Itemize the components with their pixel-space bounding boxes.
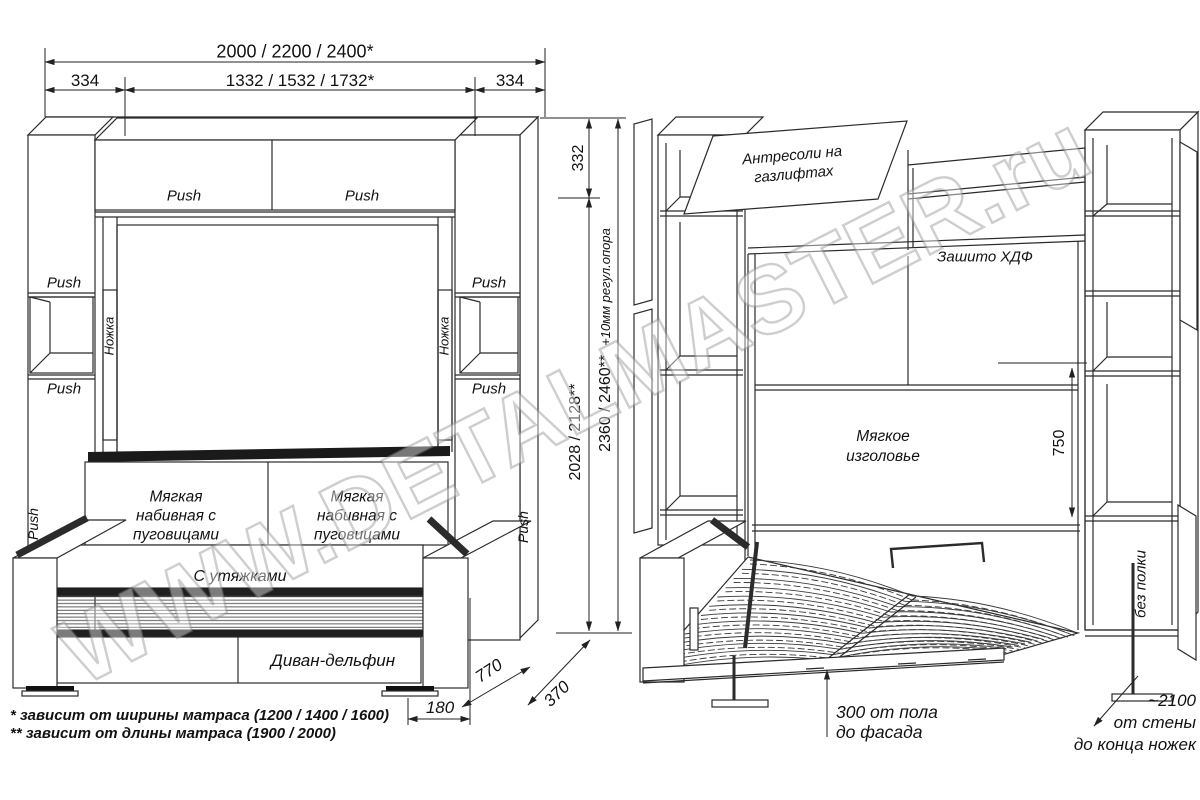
wall-note-line1: ~2100 xyxy=(1148,691,1196,710)
wall-note-line3: до конца ножек xyxy=(1074,735,1196,754)
dim-inner-height: 2028 / 2128** xyxy=(567,384,585,481)
dim-total-width: 2000 / 2200 / 2400* xyxy=(216,42,373,63)
push-left-lower: Push xyxy=(47,380,81,397)
cushion-label-right: Мягкая набивная с пуговицами xyxy=(305,488,409,545)
cushion-label-left: Мягкая набивная с пуговицами xyxy=(124,488,228,545)
push-right-vertical: Push xyxy=(515,511,531,543)
push-left-vertical: Push xyxy=(25,508,41,540)
floor-note-line2: до фасада xyxy=(836,722,923,742)
push-right-upper: Push xyxy=(472,274,506,291)
no-shelf-label: без полки xyxy=(1132,550,1149,618)
headboard-label: Мягкое изголовье xyxy=(828,427,938,467)
push-left-upper: Push xyxy=(47,274,81,291)
floor-note-line1: 300 от пола xyxy=(836,702,938,722)
dim-inner-width: 1332 / 1532 / 1732* xyxy=(226,71,374,91)
floor-note: 300 от поладо фасада xyxy=(836,702,938,742)
wall-note: ~2100от стеныдо конца ножек xyxy=(1074,690,1196,756)
wall-note-line2: от стены xyxy=(1114,713,1196,732)
leg-strip-label-left: Ножка xyxy=(103,317,118,356)
technical-drawing-page: 2000 / 2200 / 2400* 334 1332 / 1532 / 17… xyxy=(0,0,1200,800)
dim-total-height: 2360 / 2460**+10мм регул.опора xyxy=(597,228,615,452)
dim-side-depth: 180 xyxy=(426,698,454,718)
footnote-length: ** зависит от длины матраса (1900 / 2000… xyxy=(10,725,336,742)
dim-total-height-value: 2360 / 2460** xyxy=(597,355,614,452)
dim-side-right: 334 xyxy=(496,71,524,91)
leg-strip-label-right: Ножка xyxy=(438,317,453,356)
dim-upper-depth: 370 xyxy=(540,677,574,711)
footnote-width: * зависит от ширины матраса (1200 / 1400… xyxy=(10,707,389,724)
dim-side-left: 334 xyxy=(71,71,99,91)
labels-layer: 2000 / 2200 / 2400* 334 1332 / 1532 / 17… xyxy=(0,0,1200,800)
ties-label: С утяжками xyxy=(193,568,286,586)
push-door-left: Push xyxy=(167,187,201,204)
push-right-lower: Push xyxy=(472,380,506,397)
hdf-label: Зашито ХДФ xyxy=(937,248,1033,265)
dim-sofa-depth: 770 xyxy=(472,655,506,687)
push-door-right: Push xyxy=(345,187,379,204)
dim-headboard-height: 750 xyxy=(1051,430,1069,457)
sofa-type-label: Диван-дельфин xyxy=(271,651,395,671)
dim-cornice-height: 332 xyxy=(570,145,588,172)
dim-height-note: +10мм регул.опора xyxy=(598,228,613,346)
antresol-label: Антресоли на газлифтах xyxy=(729,141,857,190)
